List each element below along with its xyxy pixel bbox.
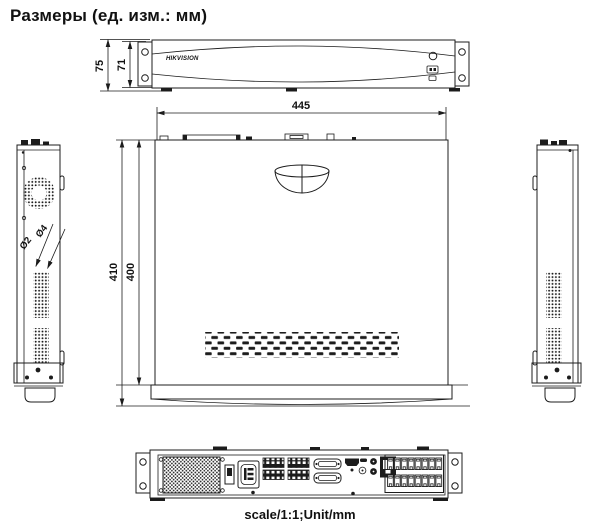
audio-jack [359,467,366,474]
side-vent-holes [546,272,562,318]
side-vent-holes [33,328,49,364]
foot [150,498,165,501]
top-edge-part [21,140,28,145]
hdmi-port [345,459,359,467]
screw-hole [221,458,225,462]
ear-hole [452,459,458,465]
top-vent-grid [205,332,399,358]
foot [433,498,448,501]
front-bezel-top-edge [151,385,452,399]
screw [22,151,24,153]
ear-hole [459,75,466,82]
fan-vent [23,177,55,209]
device-dimensions-diagram: Размеры (ед. изм.: мм) [0,0,600,531]
hole-diameter-annotation: Ø2 Ø4 [18,223,65,269]
dimension-top-depth-inner: 400 [125,140,139,385]
top-handle-recess [275,165,329,193]
scale-note: scale/1:1;Unit/mm [0,507,600,522]
screw [36,368,41,373]
bezel-curve-bottom [152,72,455,82]
foot [286,88,297,92]
power-inlet [238,461,259,488]
front-bezel-curve [151,399,452,405]
screw [351,469,354,472]
ear-hole [140,483,146,489]
screw [351,492,355,496]
extension-lines [116,140,470,406]
top-edge-part [31,139,40,145]
vga-connector [314,459,341,469]
screw-hole [159,489,163,493]
front-view: HIKVISION 75 71 [94,40,469,92]
right-side-view [532,140,581,403]
foot [161,88,172,92]
dim-label-400: 400 [125,263,137,281]
top-edge-part [43,142,49,145]
power-switch [225,465,234,484]
terminal-blocks [263,458,309,480]
screw [567,376,571,380]
screw [569,149,572,152]
side-vent-holes [33,272,49,318]
top-view: 445 [108,100,470,406]
side-tab [533,176,537,190]
audio-jack [370,458,377,465]
screw [25,376,29,380]
top-edge-part [417,447,429,451]
vga-connector [314,473,341,483]
side-vent-holes [546,328,562,364]
screw-hole [159,458,163,462]
dimension-top-depth-outer: 410 [108,140,122,406]
side-tab [60,176,64,190]
screw [49,376,53,380]
usb-port [360,459,367,463]
dim-label-hole-large: Ø4 [34,223,51,240]
left-side-view: Ø2 Ø4 [14,139,65,402]
top-edge-part [559,140,567,145]
brand-logo: HIKVISION [166,56,199,62]
audio-jack [370,468,377,475]
bezel-curve-top [152,46,455,56]
side-base [14,363,63,383]
top-edge-part [361,447,369,450]
top-edge-part [213,447,227,451]
screw [544,376,548,380]
side-foot [545,388,575,402]
dim-label-75: 75 [94,60,106,72]
screw [251,491,255,495]
ear-hole [142,75,149,82]
side-base [532,363,581,383]
screw [555,368,560,373]
dim-label-hole-small: Ø2 [18,235,34,252]
foot [449,88,460,92]
dim-label-71: 71 [116,59,128,71]
drawing-canvas: HIKVISION 75 71 [0,0,600,531]
top-edge-part [540,140,548,145]
ear-hole [459,49,466,56]
top-edge-part [551,141,557,145]
screw-hole [221,489,225,493]
ear-hole [140,459,146,465]
rear-view [136,447,462,502]
top-edge-part [310,447,320,450]
front-panel-body [152,40,455,88]
side-foot [25,388,55,402]
ear-hole [452,483,458,489]
ear-hole [142,49,149,56]
dim-label-410: 410 [108,263,120,281]
psu-vent-mesh [163,457,220,493]
rear-connectors-top-edge [160,134,356,140]
usb-port-icon [427,66,438,81]
dim-label-445: 445 [292,100,310,112]
